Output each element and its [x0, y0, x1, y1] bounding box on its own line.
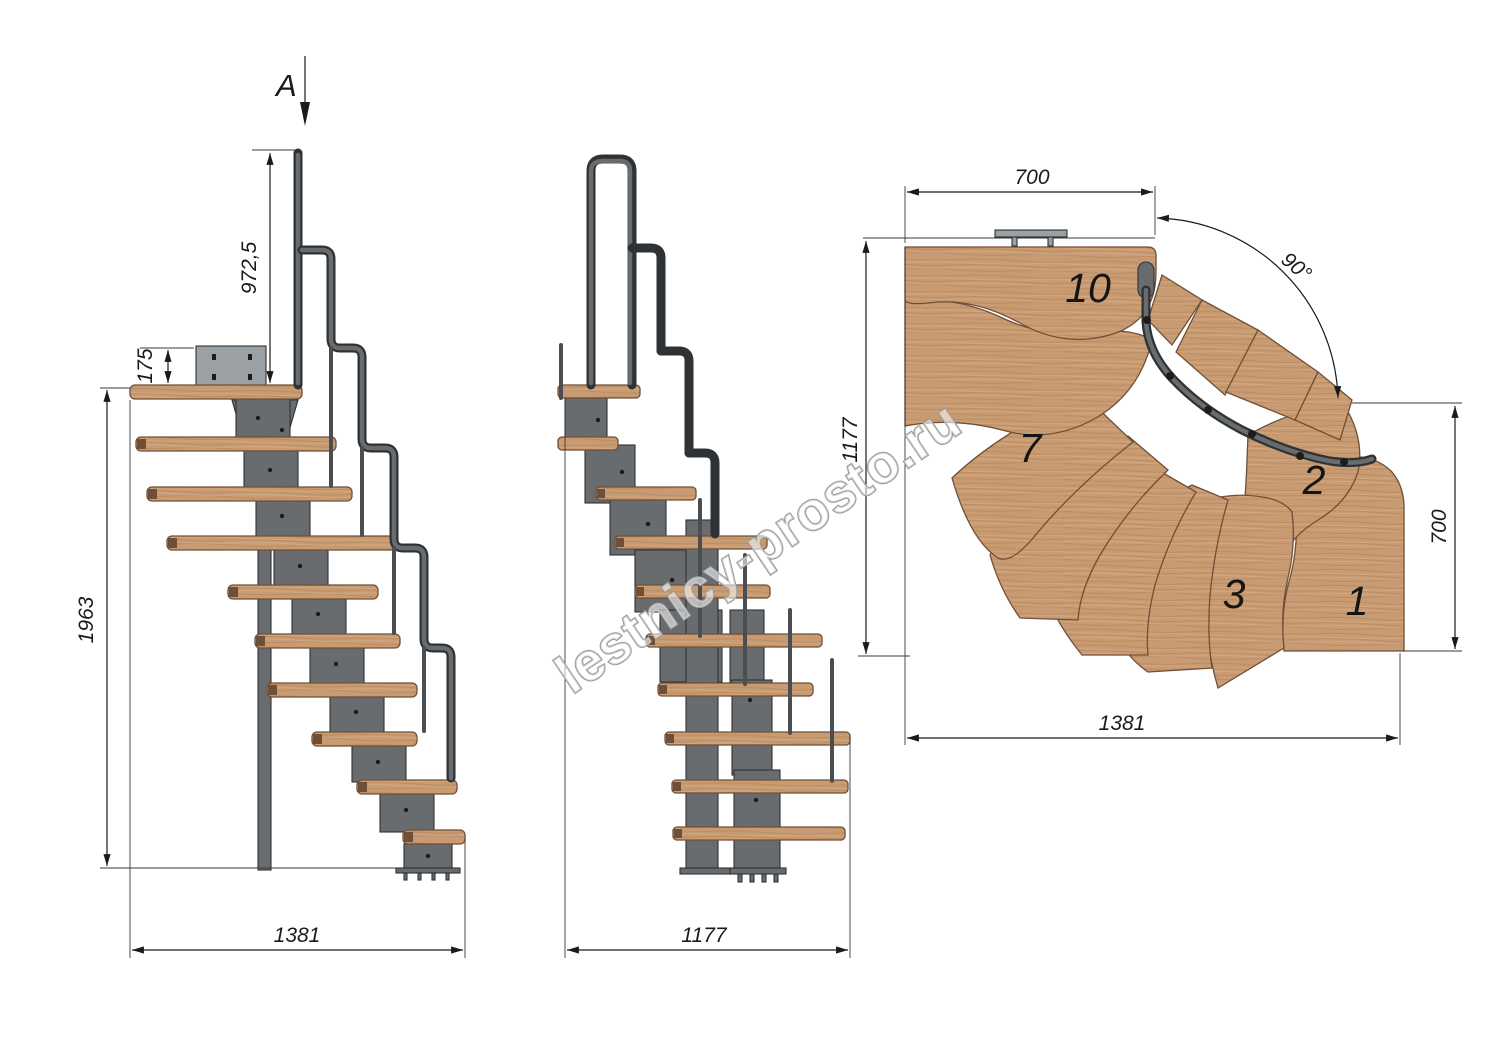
plan-total-length-text: 1381: [1099, 712, 1146, 735]
side-mounting-plate: [196, 346, 266, 388]
plan-wall-bracket: [863, 230, 1155, 246]
tread-1-label: 1: [1346, 578, 1369, 624]
side-total-length-text: 1381: [274, 924, 321, 947]
side-plate-offset-dim: 175: [134, 348, 194, 384]
section-arrow: A: [274, 56, 310, 126]
plan-right-depth-text: 700: [1428, 509, 1451, 544]
side-plate-offset-text: 175: [134, 348, 157, 383]
plan-top-width-text: 700: [1014, 166, 1049, 189]
front-total-width-text: 1177: [681, 924, 727, 947]
side-handrail-height-text: 972,5: [238, 241, 261, 294]
plan-treads: [905, 247, 1404, 688]
side-total-height-dim: 1963: [75, 388, 398, 868]
tread-3-label: 3: [1223, 571, 1246, 617]
plan-turn-angle-text: 90°: [1277, 248, 1316, 286]
tread-10-label: 10: [1065, 265, 1111, 311]
side-view: A 972,5 175 1963 1381: [75, 56, 465, 958]
stair-technical-drawing: A 972,5 175 1963 1381: [0, 0, 1500, 1061]
tread-7-label: 7: [1019, 425, 1044, 471]
tread-2-label: 2: [1302, 457, 1326, 503]
drawing-canvas: A 972,5 175 1963 1381: [0, 0, 1500, 1061]
side-total-height-text: 1963: [75, 596, 98, 643]
section-label: A: [274, 68, 297, 103]
